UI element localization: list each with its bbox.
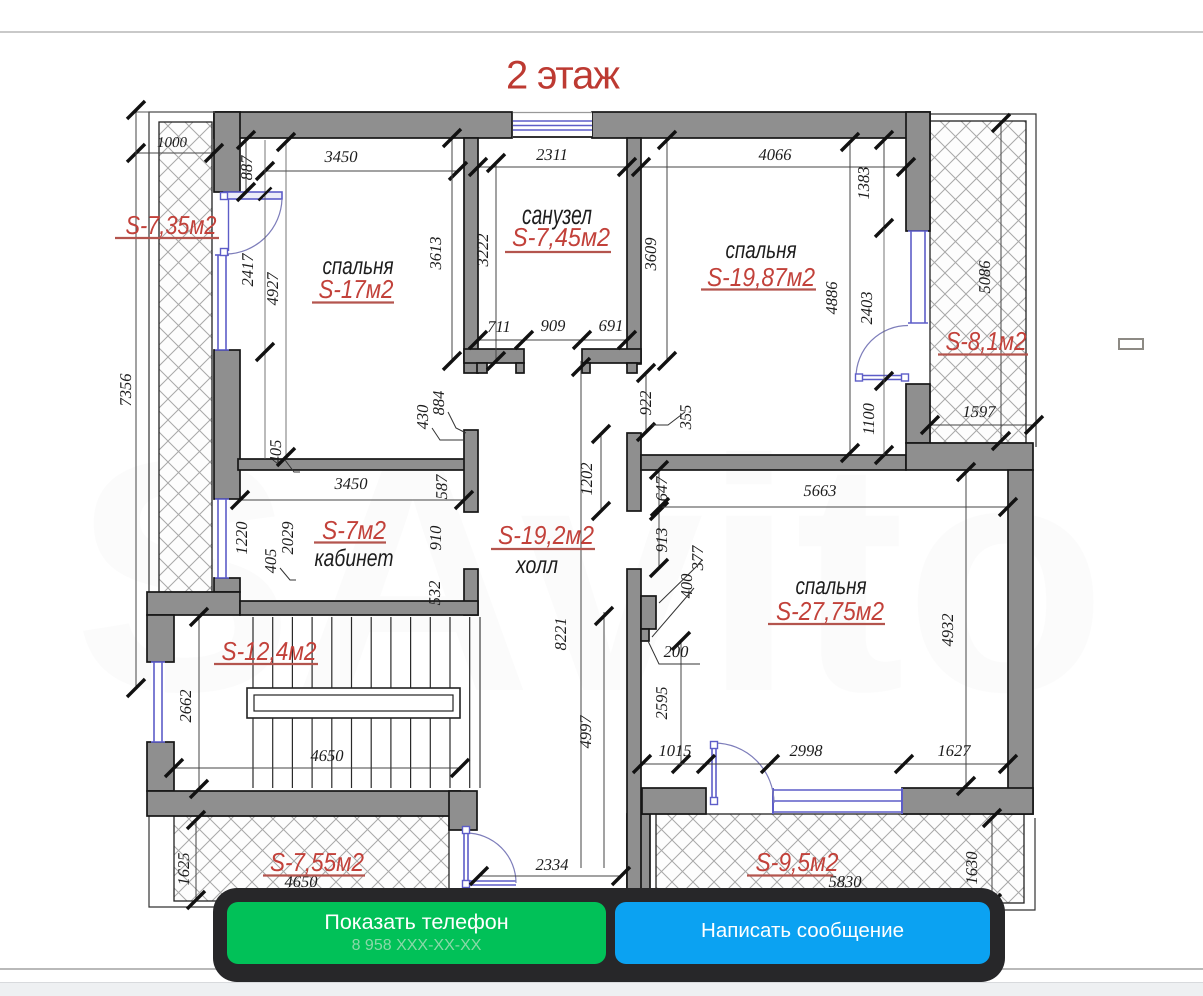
svg-text:1202: 1202	[577, 463, 596, 496]
svg-text:S-7м2: S-7м2	[322, 515, 386, 545]
svg-text:3222: 3222	[473, 234, 492, 268]
svg-text:355: 355	[676, 405, 695, 431]
svg-text:S-12,4м2: S-12,4м2	[222, 636, 317, 666]
svg-text:1000: 1000	[157, 135, 188, 151]
svg-text:1015: 1015	[659, 741, 692, 760]
svg-text:200: 200	[664, 642, 690, 661]
svg-text:3450: 3450	[324, 147, 359, 166]
svg-text:711: 711	[487, 317, 511, 336]
svg-text:4650: 4650	[311, 746, 345, 765]
svg-text:1630: 1630	[962, 851, 981, 885]
svg-text:7356: 7356	[116, 373, 135, 407]
svg-text:587: 587	[432, 474, 451, 500]
svg-text:532: 532	[425, 581, 444, 606]
svg-text:405: 405	[266, 440, 285, 465]
svg-text:5663: 5663	[804, 481, 837, 500]
svg-text:S-17м2: S-17м2	[319, 274, 394, 304]
svg-text:2 этаж: 2 этаж	[506, 54, 620, 98]
svg-text:2662: 2662	[176, 690, 195, 723]
svg-text:4927: 4927	[263, 272, 282, 306]
svg-text:S-7,55м2: S-7,55м2	[270, 847, 364, 877]
svg-text:1383: 1383	[854, 167, 873, 200]
svg-text:922: 922	[636, 391, 655, 416]
svg-text:2998: 2998	[790, 741, 824, 760]
svg-text:4932: 4932	[938, 614, 957, 647]
svg-text:S-8,1м2: S-8,1м2	[946, 326, 1027, 356]
svg-text:377: 377	[688, 545, 707, 572]
svg-text:3609: 3609	[641, 238, 660, 272]
svg-text:4886: 4886	[822, 281, 841, 315]
svg-text:647: 647	[652, 476, 671, 502]
svg-text:1597: 1597	[963, 402, 997, 421]
svg-text:кабинет: кабинет	[315, 545, 394, 572]
svg-text:S-7,35м2: S-7,35м2	[126, 210, 217, 240]
svg-text:1627: 1627	[938, 741, 972, 760]
svg-text:2417: 2417	[238, 253, 257, 287]
svg-text:910: 910	[426, 525, 445, 551]
svg-text:5086: 5086	[975, 260, 994, 294]
svg-text:2403: 2403	[857, 292, 876, 325]
svg-text:1625: 1625	[174, 853, 193, 886]
svg-text:S-27,75м2: S-27,75м2	[776, 596, 884, 626]
svg-text:S-19,2м2: S-19,2м2	[498, 520, 594, 550]
svg-text:909: 909	[541, 316, 566, 335]
svg-text:4997: 4997	[576, 715, 595, 749]
svg-text:8221: 8221	[551, 618, 570, 651]
svg-text:3450: 3450	[334, 474, 369, 493]
svg-text:3613: 3613	[426, 237, 445, 271]
svg-text:913: 913	[652, 528, 671, 553]
svg-text:2029: 2029	[278, 522, 297, 555]
svg-text:2311: 2311	[536, 145, 568, 164]
svg-text:2334: 2334	[536, 855, 569, 874]
svg-text:S-7,45м2: S-7,45м2	[512, 222, 610, 252]
svg-text:691: 691	[599, 316, 624, 335]
svg-text:4066: 4066	[759, 145, 793, 164]
svg-text:2595: 2595	[652, 687, 671, 720]
svg-text:спальня: спальня	[726, 237, 797, 264]
svg-text:S-19,87м2: S-19,87м2	[707, 262, 815, 292]
svg-text:1100: 1100	[859, 402, 878, 435]
svg-text:1220: 1220	[232, 521, 251, 555]
svg-text:холл: холл	[515, 552, 558, 579]
svg-text:884: 884	[429, 391, 448, 416]
svg-text:887: 887	[237, 155, 256, 181]
svg-text:S-9,5м2: S-9,5м2	[756, 847, 839, 877]
